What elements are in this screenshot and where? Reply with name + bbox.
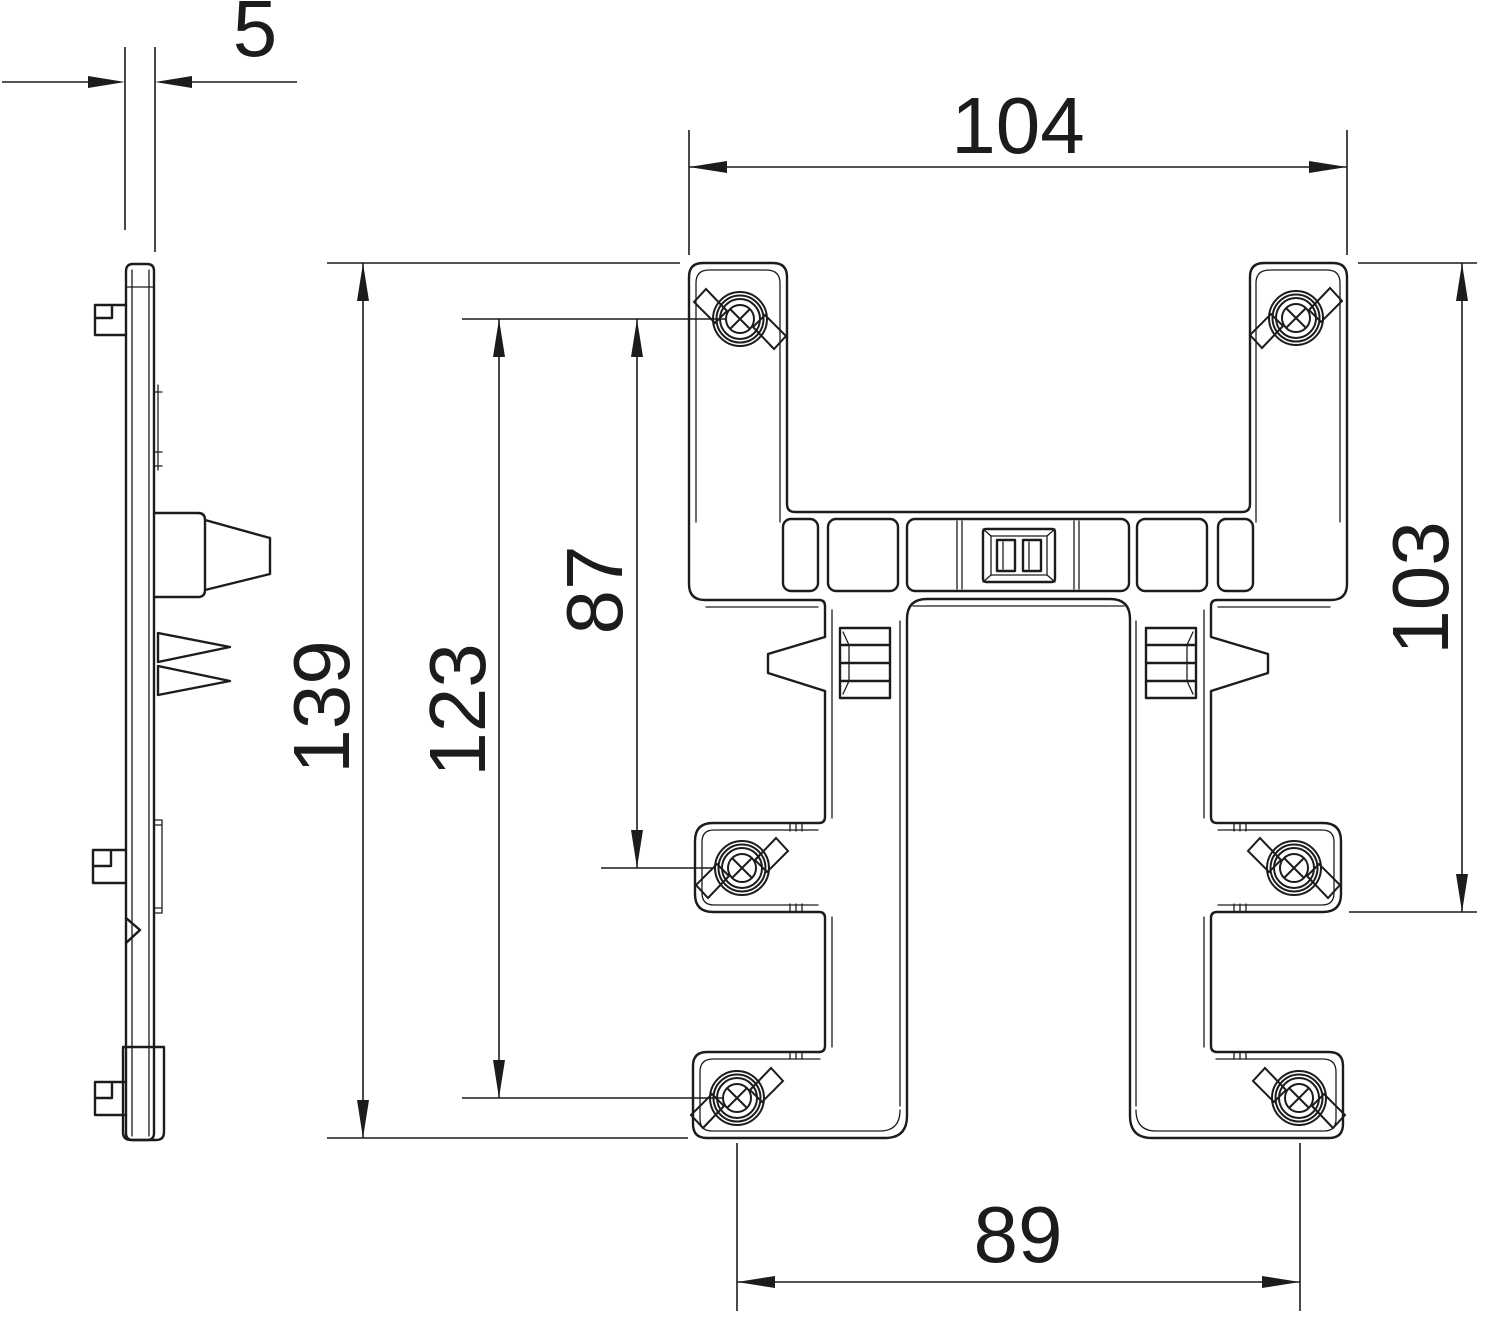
side-hook-middle [93, 850, 126, 883]
side-v-notch [126, 918, 140, 943]
drawing-svg: 5 104 139 123 87 [0, 0, 1500, 1317]
arrowhead [357, 263, 369, 301]
crossbar-segment [1218, 519, 1253, 591]
center-clip-slot [997, 540, 1015, 571]
center-clip-inner [991, 536, 1047, 575]
arrowhead [631, 830, 643, 868]
technical-drawing: 5 104 139 123 87 [0, 0, 1500, 1317]
ladder-right [1146, 628, 1196, 698]
crossbar-segment [828, 519, 898, 591]
dim-label-right-height: 103 [1376, 521, 1465, 654]
side-view [93, 264, 270, 1140]
screw-icon [1253, 1068, 1345, 1128]
center-clip-bevels [983, 529, 1055, 582]
arrowhead [631, 319, 643, 357]
crossbar-segment [1137, 519, 1207, 591]
side-plate-inner-lines [126, 270, 154, 1136]
dim-label-overall-height: 139 [277, 640, 366, 773]
arrowhead [689, 161, 727, 173]
crossbar-dividers [957, 521, 1079, 589]
ladder-left [840, 628, 890, 698]
arrowhead [737, 1276, 775, 1288]
side-hook-bottom [95, 1082, 126, 1115]
crossbar-segment [783, 519, 818, 591]
dim-label-hole-span-outer: 123 [413, 643, 502, 776]
arrowhead [1309, 161, 1347, 173]
dim-hole-span-bottom: 89 [737, 1143, 1300, 1311]
dim-hole-span-outer: 123 [413, 319, 727, 1098]
dim-label-top-width: 104 [951, 81, 1084, 170]
arrowhead [493, 319, 505, 357]
side-barb-chevrons [158, 633, 230, 695]
side-clip-nose [154, 513, 270, 597]
center-clip [983, 529, 1055, 582]
crossbar [783, 519, 1253, 591]
arrowhead [1456, 263, 1468, 301]
dim-hole-span-upper: 87 [550, 319, 712, 868]
arrowhead [357, 1100, 369, 1138]
front-outer-contour [689, 263, 1347, 1138]
arrowhead [1456, 874, 1468, 912]
screw-icon [1248, 838, 1340, 898]
dim-label-thickness: 5 [233, 0, 278, 73]
dim-label-hole-span-bottom: 89 [974, 1190, 1063, 1279]
dim-top-width: 104 [689, 81, 1347, 255]
side-hook-top [95, 305, 126, 335]
side-foot [123, 1047, 164, 1140]
center-clip-frame [983, 529, 1055, 582]
ladder-rungs [840, 645, 890, 681]
center-clip-slot [1023, 540, 1041, 571]
front-view [689, 263, 1347, 1138]
tab-chamfer-ticks [790, 823, 1246, 1059]
arrowhead [1262, 1276, 1300, 1288]
dim-right-height: 103 [1349, 263, 1477, 912]
ladder-rungs [1146, 645, 1196, 681]
arrowhead [155, 76, 192, 88]
screw-icon [1250, 288, 1342, 348]
arrowhead [493, 1060, 505, 1098]
dim-label-hole-span-upper: 87 [550, 546, 639, 635]
side-plate-outline [126, 264, 154, 1140]
dimensions: 5 104 139 123 87 [2, 0, 1477, 1311]
arrowhead [88, 76, 125, 88]
dim-thickness: 5 [2, 0, 297, 252]
front-inner-contours [696, 270, 1340, 1131]
